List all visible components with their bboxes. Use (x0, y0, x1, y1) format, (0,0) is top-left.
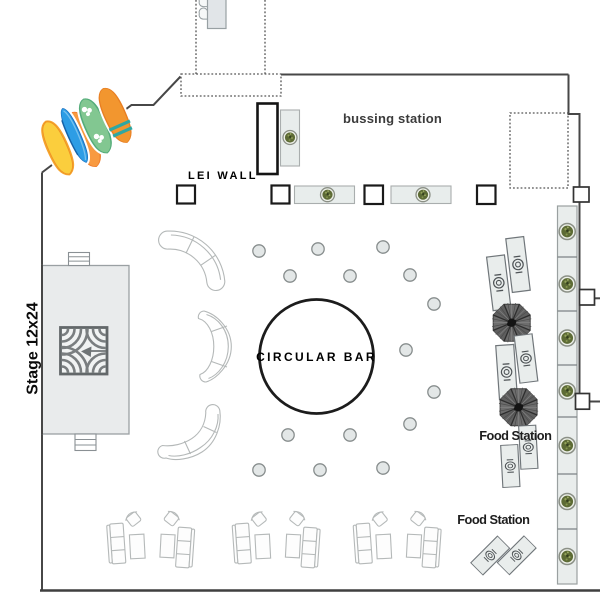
svg-text:bussing station: bussing station (343, 111, 442, 126)
svg-text:Food Station: Food Station (457, 512, 530, 527)
svg-text:LEI WALL: LEI WALL (188, 170, 258, 182)
svg-text:CIRCULAR BAR: CIRCULAR BAR (256, 350, 377, 364)
svg-text:Food Station: Food Station (479, 428, 552, 443)
svg-text:Stage 12x24: Stage 12x24 (25, 302, 42, 395)
